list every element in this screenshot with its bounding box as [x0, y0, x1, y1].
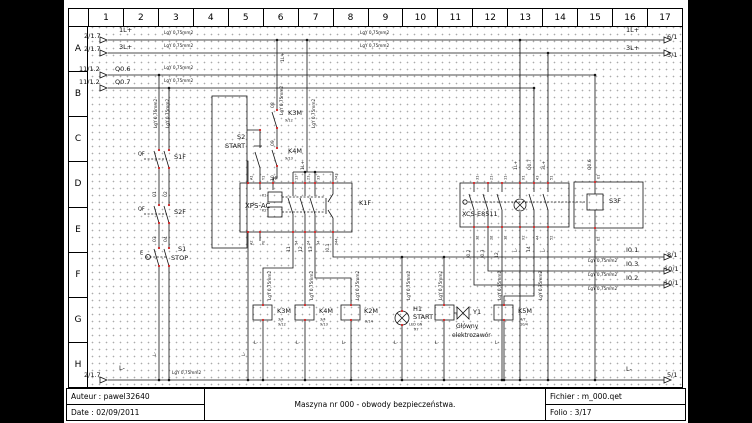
drawing-title: Maszyna nr 000 - obwody bezpieczeństwa. — [205, 389, 545, 420]
column-number: 11 — [437, 9, 472, 26]
row-letter: G — [69, 297, 87, 342]
column-number: 12 — [472, 9, 507, 26]
column-number: 6 — [263, 9, 298, 26]
column-number: 13 — [507, 9, 542, 26]
column-number: 14 — [542, 9, 577, 26]
drawing-grid — [87, 27, 683, 388]
file-field: Fichier : m_000.qet — [546, 389, 685, 405]
column-number: 8 — [333, 9, 368, 26]
column-ruler: 1234567891011121314151617 — [68, 8, 683, 27]
column-number: 9 — [368, 9, 403, 26]
column-number: 1 — [89, 9, 123, 26]
column-number: 17 — [647, 9, 682, 26]
row-letter: D — [69, 161, 87, 206]
row-letter: E — [69, 207, 87, 252]
schematic-page: 1234567891011121314151617 ABCDEFGH — [64, 0, 688, 423]
column-number: 3 — [158, 9, 193, 26]
row-letter: B — [69, 71, 87, 116]
column-number: 10 — [402, 9, 437, 26]
title-block: Auteur : pawel32640 Date : 02/09/2011 Ma… — [66, 388, 686, 421]
date-field: Date : 02/09/2011 — [67, 405, 204, 420]
column-number: 2 — [123, 9, 158, 26]
row-letter: H — [69, 342, 87, 387]
author-field: Auteur : pawel32640 — [67, 389, 204, 405]
letterbox-right — [688, 0, 752, 423]
row-ruler: ABCDEFGH — [68, 27, 88, 388]
column-number: 5 — [228, 9, 263, 26]
folio-field: Folio : 3/17 — [546, 405, 685, 420]
row-letter: F — [69, 252, 87, 297]
column-number: 4 — [193, 9, 228, 26]
column-number: 7 — [298, 9, 333, 26]
row-letter: C — [69, 116, 87, 161]
column-number: 16 — [612, 9, 647, 26]
row-letter: A — [69, 27, 87, 71]
column-number: 15 — [577, 9, 612, 26]
ruler-corner — [69, 9, 89, 26]
letterbox-left — [0, 0, 64, 423]
